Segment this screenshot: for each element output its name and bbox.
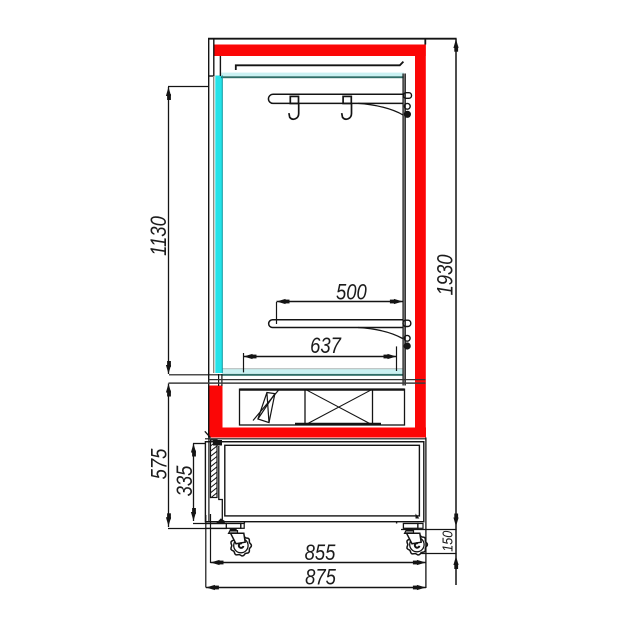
svg-text:855: 855 — [305, 542, 336, 566]
svg-text:500: 500 — [336, 281, 367, 305]
svg-text:150: 150 — [438, 530, 455, 551]
svg-text:637: 637 — [310, 335, 341, 359]
svg-text:1930: 1930 — [434, 254, 458, 296]
svg-text:1130: 1130 — [147, 216, 171, 256]
svg-text:575: 575 — [148, 448, 172, 479]
svg-text:875: 875 — [305, 566, 336, 590]
svg-text:335: 335 — [174, 465, 198, 496]
